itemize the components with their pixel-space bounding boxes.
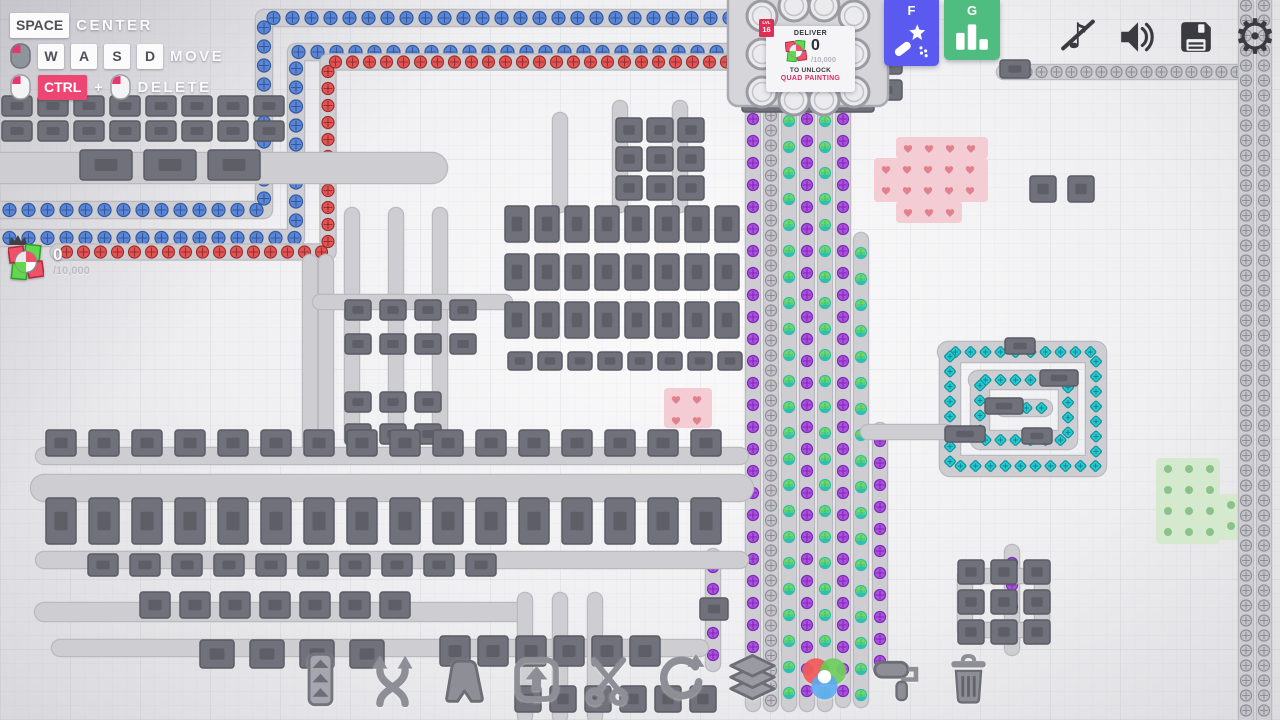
- quickbar-wand-button[interactable]: F: [884, 0, 939, 66]
- machine-cluster[interactable]: [616, 118, 704, 200]
- game-viewport: SPACE CENTER W A S D MOVE CTRL +: [0, 0, 1280, 720]
- system-bar: ♪ ⚙: [1056, 12, 1277, 62]
- belt[interactable]: [875, 430, 886, 667]
- bar-chart-icon: [953, 20, 991, 52]
- goal-total: /10,000: [53, 265, 90, 277]
- factory-map[interactable]: [0, 0, 1280, 720]
- hotkey-row-delete: CTRL + DELETE: [10, 74, 224, 100]
- cutter-icon: [581, 652, 636, 707]
- mouse-left-icon: [10, 74, 31, 100]
- machine-cluster[interactable]: [1000, 60, 1030, 78]
- key-space: SPACE: [10, 13, 69, 38]
- color-mixer-icon: [797, 652, 852, 707]
- music-toggle-button[interactable]: ♪: [1056, 12, 1100, 62]
- volume-button[interactable]: [1115, 12, 1159, 62]
- key-d: D: [137, 44, 163, 69]
- hub-level-number: 16: [762, 26, 770, 34]
- goal-shape-icon: [8, 244, 44, 280]
- painter-icon: [869, 652, 924, 707]
- resource-patch: [664, 388, 712, 428]
- save-icon: [1178, 19, 1214, 55]
- machine-cluster[interactable]: [140, 592, 410, 618]
- resource-patch: [1156, 458, 1243, 544]
- machine-cluster[interactable]: [80, 150, 260, 180]
- stacker-icon: [725, 652, 780, 707]
- toolbar-cutter-button[interactable]: [576, 646, 640, 712]
- mouse-drag-icon: [10, 43, 31, 69]
- settings-button[interactable]: ⚙: [1233, 12, 1277, 62]
- save-button[interactable]: [1174, 12, 1218, 62]
- key-s: S: [104, 44, 130, 69]
- machine-cluster[interactable]: [1005, 338, 1035, 354]
- belt[interactable]: [766, 108, 777, 706]
- magic-wand-icon: [891, 20, 933, 62]
- goal-amount: 0: [53, 246, 90, 263]
- belt[interactable]: [784, 108, 795, 704]
- pinned-goal[interactable]: 0 /10,000: [8, 240, 90, 280]
- machine-cluster[interactable]: [945, 426, 985, 442]
- hotkey-label-move: MOVE: [170, 48, 224, 65]
- belt[interactable]: [856, 240, 867, 701]
- bottom-toolbar: [288, 646, 1000, 712]
- machine-cluster[interactable]: [2, 96, 284, 141]
- belt[interactable]: [820, 108, 831, 704]
- resource-patch: [874, 137, 988, 223]
- key-w: W: [38, 44, 64, 69]
- gear-icon: ⚙: [1233, 13, 1276, 61]
- hotkey-row-center: SPACE CENTER: [10, 12, 224, 38]
- plus-separator: +: [94, 79, 102, 95]
- key-a: A: [71, 44, 97, 69]
- belt[interactable]: [1259, 0, 1270, 718]
- belt[interactable]: [838, 108, 849, 700]
- shuffle-icon: [365, 652, 420, 707]
- hotkey-label-center: CENTER: [76, 17, 153, 34]
- rotator-icon: [653, 652, 708, 707]
- machine-cluster[interactable]: [46, 498, 721, 544]
- toolbar-shape-tool-button[interactable]: [432, 646, 496, 712]
- toolbar-delete-button[interactable]: [936, 646, 1000, 712]
- machine-cluster[interactable]: [958, 560, 1050, 644]
- key-ctrl: CTRL: [38, 75, 87, 100]
- toolbar-lift-button[interactable]: [504, 646, 568, 712]
- hotkey-hints: SPACE CENTER W A S D MOVE CTRL +: [10, 12, 224, 100]
- machine-cluster[interactable]: [700, 598, 728, 620]
- machine-cluster[interactable]: [508, 352, 742, 370]
- machine-cluster[interactable]: [1030, 176, 1094, 202]
- hub-unlock-label: TO UNLOCK: [790, 67, 831, 74]
- hub-panel: LVL 16 DELIVER 0 /10,000 TO UNLOCK QUAD …: [766, 26, 855, 92]
- lift-icon: [509, 652, 564, 707]
- hub-amount: 0: [811, 38, 836, 54]
- mouse-left-icon: [110, 74, 131, 100]
- belt[interactable]: [1241, 0, 1252, 718]
- toolbar-conveyor-button[interactable]: [288, 646, 352, 712]
- toolbar-stacker-button[interactable]: [720, 646, 784, 712]
- conveyor-icon: [293, 652, 348, 707]
- machine-cluster[interactable]: [1022, 428, 1052, 444]
- hub-goal-shape-icon: [785, 40, 807, 62]
- quickbar-stats-button[interactable]: G: [944, 0, 1000, 60]
- quickbar-wand-hotkey: F: [908, 4, 916, 17]
- delete-icon: [941, 652, 996, 707]
- hub-unlock-reward: QUAD PAINTING: [781, 75, 840, 82]
- hub-level-badge: LVL 16: [759, 19, 774, 37]
- shape-tool-icon: [437, 652, 492, 707]
- hub-deliver-label: DELIVER: [794, 30, 827, 37]
- toolbar-shuffle-button[interactable]: [360, 646, 424, 712]
- machine-cluster[interactable]: [985, 398, 1023, 414]
- hotkey-row-move: W A S D MOVE: [10, 43, 224, 69]
- toolbar-color-mixer-button[interactable]: [792, 646, 856, 712]
- belt[interactable]: [802, 108, 813, 704]
- quickbar-stats-hotkey: G: [967, 4, 977, 17]
- machine-cluster[interactable]: [505, 206, 739, 338]
- toolbar-rotator-button[interactable]: [648, 646, 712, 712]
- machine-cluster[interactable]: [1040, 370, 1078, 386]
- speaker-icon: [1118, 19, 1156, 55]
- hub-total: /10,000: [811, 55, 836, 64]
- belt[interactable]: [748, 108, 759, 704]
- toolbar-painter-button[interactable]: [864, 646, 928, 712]
- hotkey-label-delete: DELETE: [138, 79, 212, 96]
- belt[interactable]: [1004, 67, 1242, 78]
